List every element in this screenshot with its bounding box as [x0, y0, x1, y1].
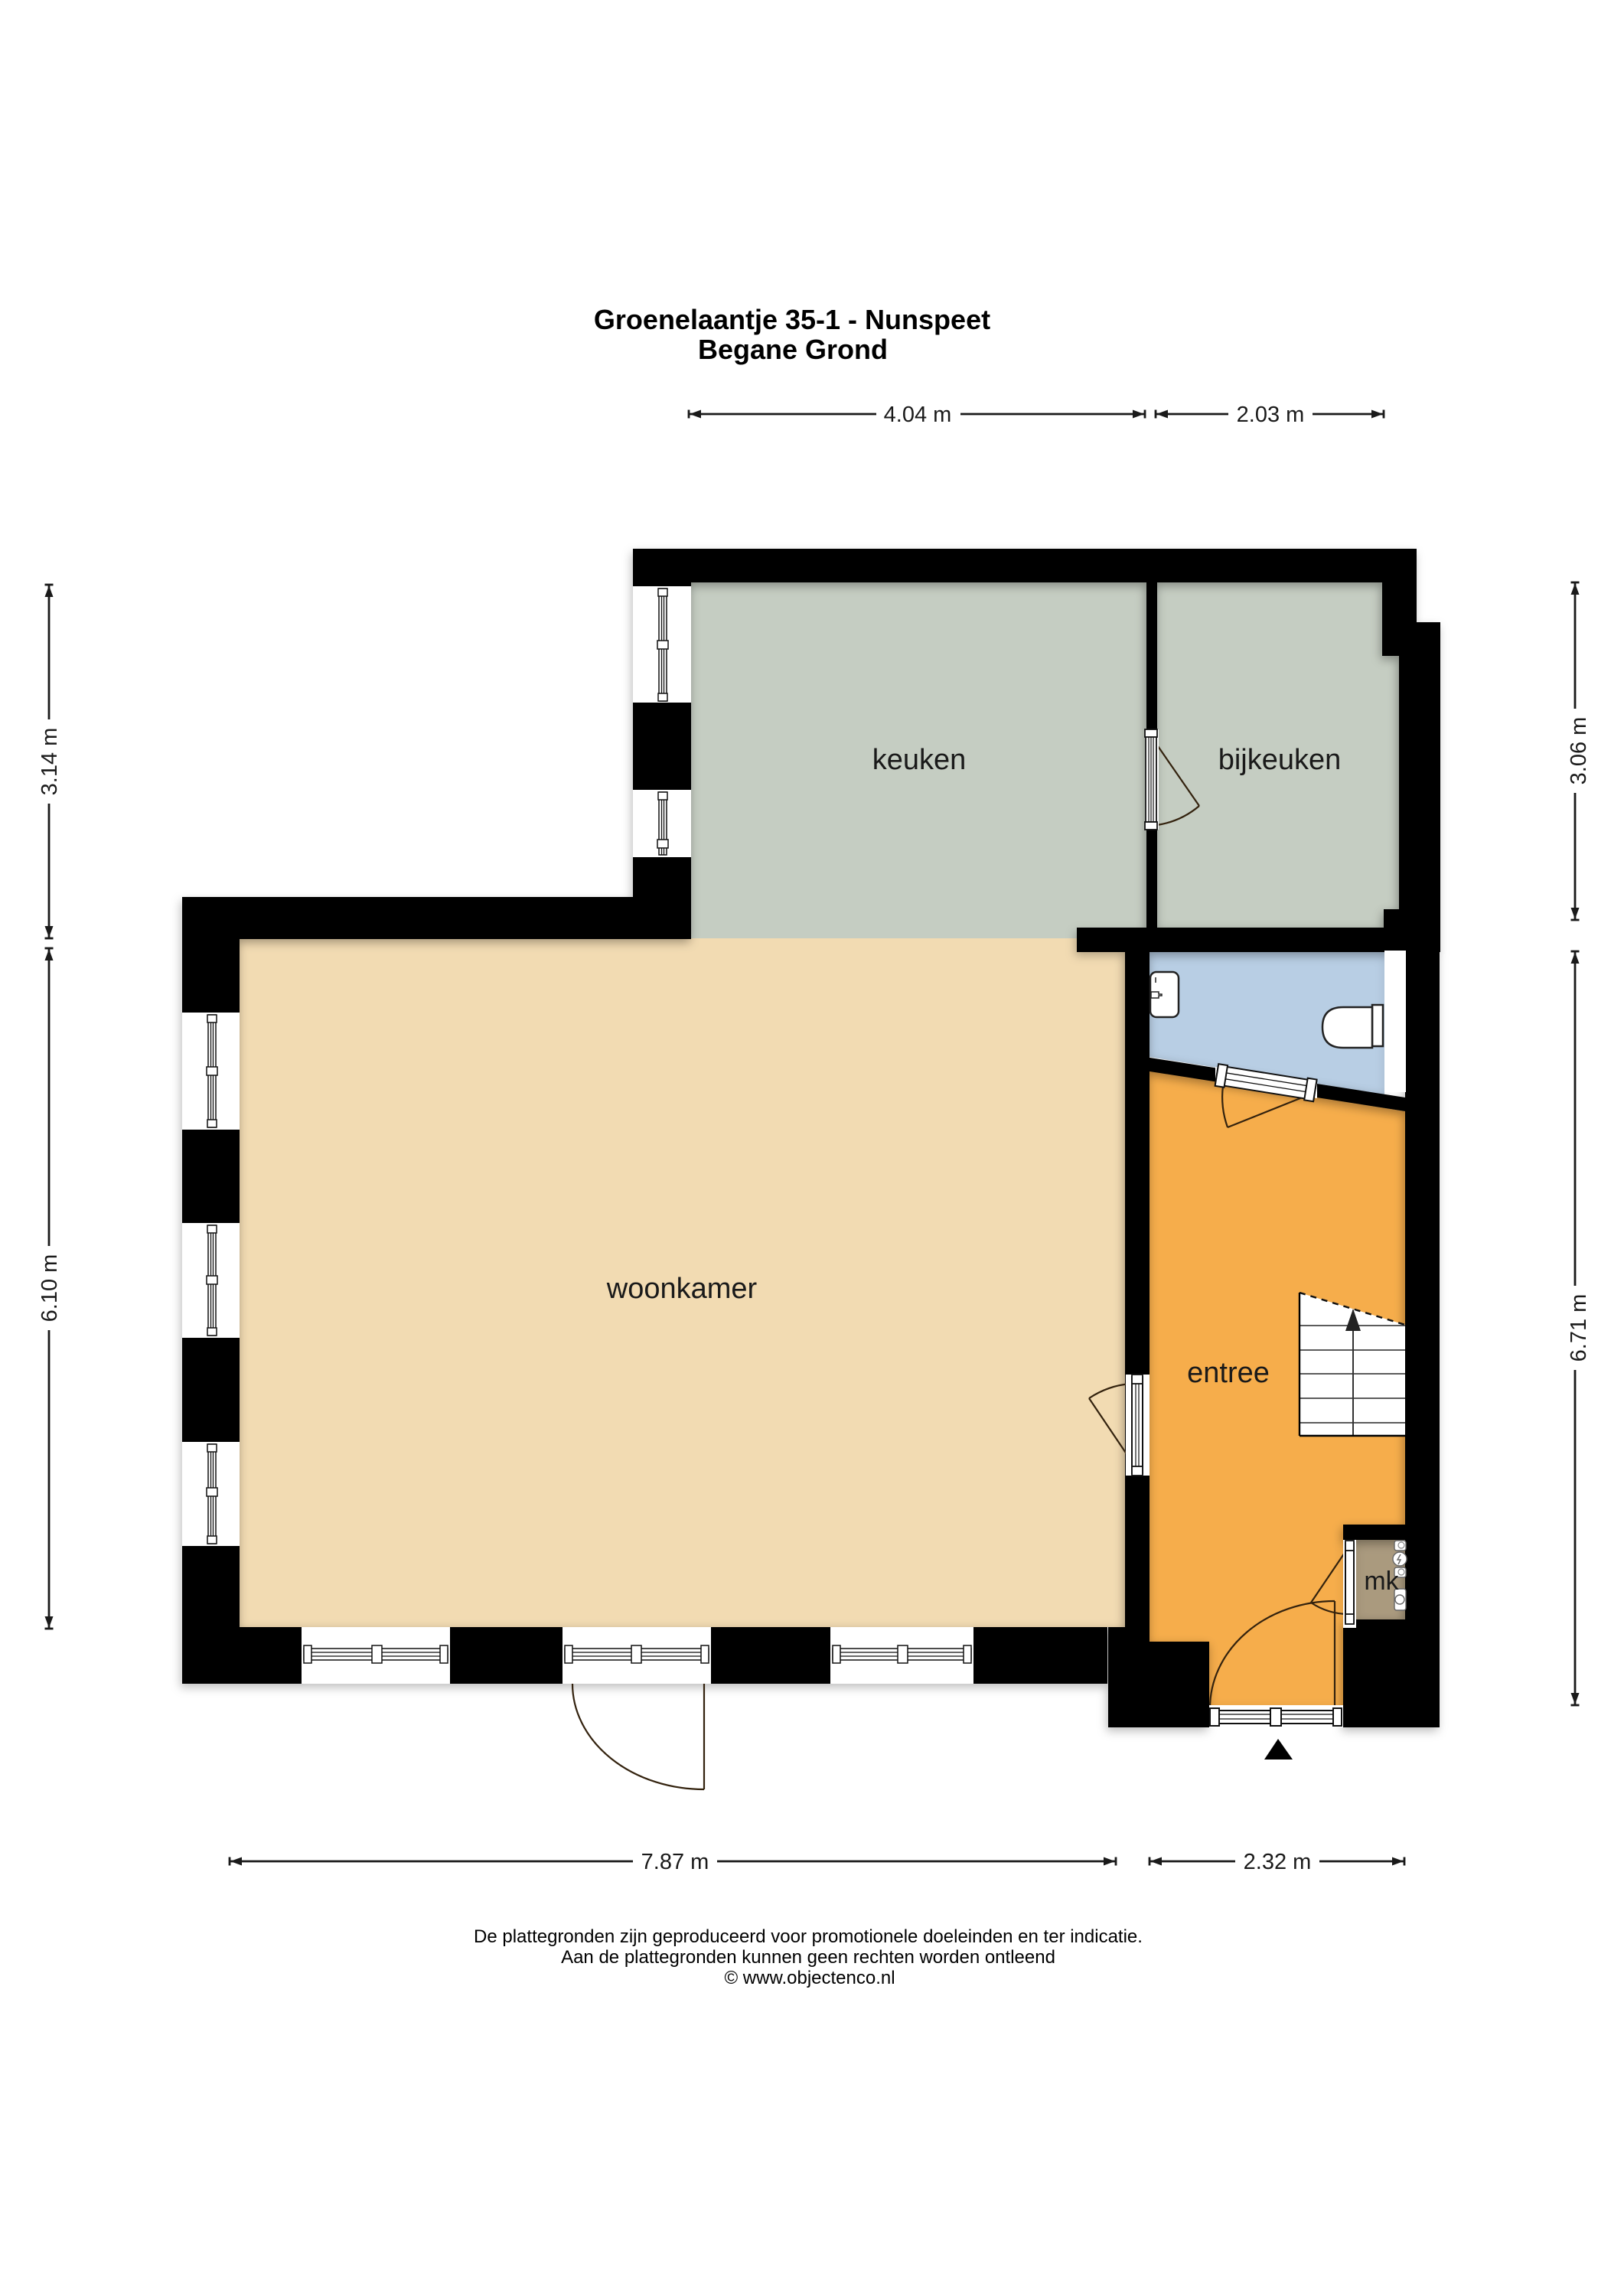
svg-text:Aan de plattegronden kunnen ge: Aan de plattegronden kunnen geen rechten…: [561, 1947, 1055, 1968]
svg-text:bijkeuken: bijkeuken: [1218, 744, 1342, 776]
svg-text:3.06 m: 3.06 m: [1567, 717, 1591, 785]
svg-text:entree: entree: [1187, 1357, 1270, 1389]
svg-text:3.14 m: 3.14 m: [38, 728, 62, 796]
svg-text:2.32 m: 2.32 m: [1244, 1850, 1312, 1874]
svg-text:mk: mk: [1364, 1567, 1399, 1596]
svg-text:4.04 m: 4.04 m: [884, 403, 952, 427]
svg-text:7.87 m: 7.87 m: [641, 1850, 709, 1874]
svg-text:woonkamer: woonkamer: [606, 1273, 758, 1305]
svg-text:© www.objectenco.nl: © www.objectenco.nl: [724, 1968, 895, 1988]
svg-text:6.10 m: 6.10 m: [38, 1254, 62, 1322]
svg-text:6.71 m: 6.71 m: [1567, 1294, 1591, 1362]
svg-text:Groenelaantje 35-1 - Nunspeet: Groenelaantje 35-1 - Nunspeet: [594, 304, 990, 335]
svg-text:Begane Grond: Begane Grond: [698, 334, 888, 365]
svg-text:keuken: keuken: [872, 744, 967, 776]
svg-text:De plattegronden zijn geproduc: De plattegronden zijn geproduceerd voor …: [474, 1926, 1143, 1947]
svg-text:2.03 m: 2.03 m: [1237, 403, 1305, 427]
